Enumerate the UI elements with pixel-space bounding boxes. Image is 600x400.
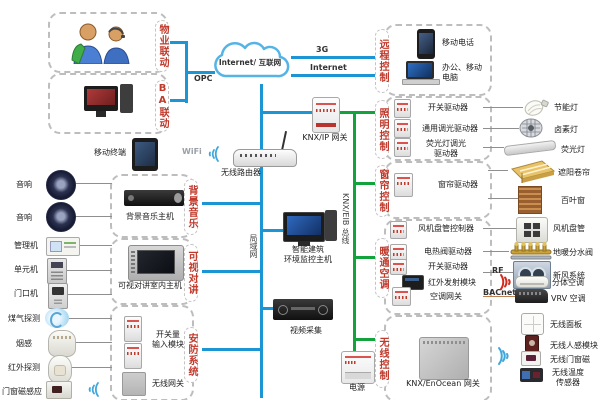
switch-driver-icon [394,99,411,118]
line-manifold [483,251,509,252]
fancoil-unit-icon [516,217,548,243]
label-3g: 3G [316,45,328,55]
line-manager [78,245,112,246]
label-lan: 局域网 [249,234,257,258]
manager-icon [46,237,80,256]
gas-detector-icon [45,308,69,328]
group-label-curtain: 窗帘控制 [375,165,389,217]
wireless-pir-icon [525,335,539,352]
group-label-intercom: 可视对讲 [184,244,198,302]
unit-label: 单元机 [14,265,38,275]
wireless-magnet-icon [521,351,541,366]
laptop-label: 办公、移动 电脑 [442,63,482,82]
line-ba-to-cloud [170,99,187,102]
speaker1-label: 音响 [16,180,32,190]
video-capture-icon [273,299,333,320]
ac-gateway-label: 空调网关 [430,292,462,302]
group-label-wireless: 无线控制 [375,330,389,388]
line-speaker1 [74,183,112,184]
video-capture-label: 视频采集 [290,326,322,336]
group-label-lighting: 照明控制 [375,100,389,159]
label-internet: Internet [310,63,347,73]
label-wifi: WiFi [182,147,202,157]
smoke-detector-icon [48,330,76,357]
knxip-gateway-icon [312,97,340,133]
speaker2-icon [46,202,76,232]
ir-detector-icon [48,355,72,383]
building-host-tower-icon [325,210,337,241]
speaker1-icon [46,170,76,200]
power-supply-icon [341,351,375,384]
wireless-panel-label: 无线面板 [550,320,582,330]
line-unit [65,270,112,271]
switch-input-label: 开关量 输入模块 [148,330,188,349]
wireless-temp-icon [520,368,543,382]
split-ac-icon [515,276,549,288]
line-cfl [483,107,523,108]
fluor-driver-icon [394,138,411,157]
split-ac-label: 分体空调 [552,278,584,288]
door-label: 门口机 [14,289,38,299]
ba-tower-icon [120,84,133,113]
ac-gateway-icon [392,287,411,306]
fluor-driver-label: 荧光灯调光 驱动器 [420,139,472,158]
building-host-label: 智能建筑 环境监控主机 [272,245,344,264]
switch-input-module1-icon [124,316,142,342]
group-box-music [110,174,194,238]
router-label: 无线路由器 [221,168,261,178]
gas-label: 煤气探测 [8,314,40,324]
line-knxip-to-lighting [338,111,378,114]
door-station-icon [48,283,68,309]
group-box-remote [384,24,492,96]
ba-computer-icon [84,86,118,111]
awning-label: 遮阳卷帘 [558,168,590,178]
line-3g [291,56,378,59]
group-label-property: 物业联动 [155,20,169,72]
mobile-phone-label: 移动电话 [442,38,474,48]
unit-icon [47,258,67,284]
cfl-lamp-label: 节能灯 [554,103,578,113]
knx-system-diagram: 物业联动 BA联动 背景音乐 可视对讲 安防系统 远程控制 照明控制 窗帘控制 … [0,0,600,400]
vrv-ac-label: VRV 空调 [551,294,586,304]
knxip-gateway-label: KNX/IP 网关 [298,133,352,143]
enocean-gateway-icon [419,337,469,380]
enocean-gateway-label: KNX/EnOcean 网关 [398,379,488,389]
label-rf: RF [492,266,504,276]
valve-driver-label: 电热阀驱动器 [424,247,472,257]
wireless-gateway-label: 无线网关 [152,379,184,389]
manager-label: 管理机 [14,241,38,251]
magnet-sensor-icon [46,381,72,399]
mobile-phone-icon [417,29,435,59]
line-blind [488,198,518,199]
line-lan-to-security [202,348,260,351]
fluorescent-label: 荧光灯 [561,145,585,155]
manifold-label: 地暖分水阀 [553,248,593,258]
dimmer-driver-icon [394,119,411,138]
group-label-hvac: 暖通空调 [375,238,389,298]
fancoil-ctrl-icon [390,221,407,239]
line-smoke [74,342,112,343]
internet-cloud-label: Internet/ 互联网 [208,58,292,67]
music-host-icon [124,190,184,206]
awning-icon [508,157,556,189]
group-label-music: 背景音乐 [184,179,198,235]
wireless-gateway-icon [122,372,146,396]
label-bacnet: BACnet [483,288,516,298]
wireless-waves-icon [494,344,514,368]
ir-emitter-label: 红外发射模块 [428,278,476,288]
intercom-host-icon [128,245,184,281]
switch-driver-label: 开关驱动器 [428,103,468,113]
smoke-label: 烟感 [16,339,32,349]
line-lan-to-intercom [202,270,260,273]
music-host-label: 背景音乐主机 [112,212,188,222]
line-lan-to-knxip [262,111,313,114]
line-internet [291,74,378,77]
line-fluor [483,147,504,148]
halogen-lamp-icon [519,118,543,139]
power-supply-label: 电源 [343,383,371,393]
fancoil-unit-label: 风机盘管 [553,224,585,234]
wireless-panel-icon [521,313,544,335]
magnet-wifi-icon [84,380,102,400]
line-bus-backbone [353,111,356,353]
label-opc: OPC [194,74,213,84]
wireless-temp-label: 无线温度 传感器 [548,368,588,387]
tablet-icon [132,138,158,171]
line-fancoil [483,228,516,229]
curtain-driver-icon [394,173,413,197]
mobile-terminal-label: 移动终端 [94,148,126,158]
line-awning [488,170,508,171]
line-lan-to-host [263,229,285,232]
ir-label: 红外探测 [8,363,40,373]
fancoil-ctrl-label: 风机盘管控制器 [418,224,474,234]
halogen-lamp-label: 卤素灯 [554,125,578,135]
operators-icon [70,20,132,68]
building-host-monitor-icon [283,212,325,242]
group-label-ba: BA联动 [155,80,169,132]
line-ir [70,367,112,368]
blind-icon [518,186,542,214]
speaker2-label: 音响 [16,213,32,223]
line-lan-to-music [202,202,260,205]
line-door [66,294,112,295]
laptop-icon [402,61,438,85]
fluorescent-tube-icon [504,140,557,156]
line-speaker2 [74,216,112,217]
line-halogen [483,128,519,129]
wifi-waves-icon [204,143,222,165]
magnet-label: 门窗磁感应 [2,387,42,397]
wireless-pir-label: 无线人感模块 [550,341,598,351]
curtain-driver-label: 窗帘驱动器 [438,180,478,190]
vrv-ac-icon [515,289,548,303]
switch-input-module2-icon [124,343,142,369]
blind-label: 百叶窗 [561,196,585,206]
wireless-magnet-label: 无线门窗磁 [550,355,590,365]
group-label-security: 安防系统 [184,327,198,383]
wireless-router-icon [233,131,297,167]
line-gas [69,318,112,319]
group-label-remote: 远程控制 [375,29,389,93]
dimmer-driver-label: 通用调光驱动器 [422,124,478,134]
switch-driver2-label: 开关驱动器 [428,262,468,272]
label-knx-bus: KNX/EIB 总线 [341,193,349,244]
switch-driver2-icon [390,259,407,275]
